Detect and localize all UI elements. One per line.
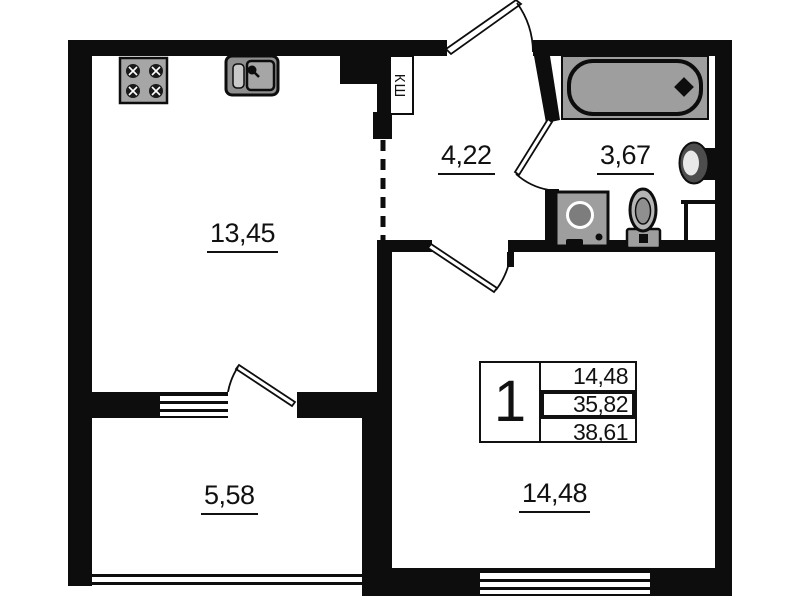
stove-icon bbox=[120, 58, 167, 103]
balcony-area-label: 5,58 bbox=[201, 482, 258, 515]
left-wall bbox=[68, 40, 92, 586]
glazing-line bbox=[92, 574, 362, 577]
total-area-with-balcony-value: 38,61 bbox=[541, 418, 635, 446]
top-wall-right bbox=[533, 40, 732, 56]
glazing-line bbox=[92, 582, 362, 585]
flat-number-cell: 1 bbox=[481, 363, 541, 441]
bathtub-icon bbox=[562, 56, 708, 119]
outer-walls bbox=[68, 40, 732, 596]
right-wall bbox=[715, 40, 732, 594]
door-leaf bbox=[428, 244, 497, 292]
drum bbox=[568, 203, 593, 228]
window-pane bbox=[480, 590, 650, 594]
living-bedroom-wall bbox=[377, 240, 392, 392]
bedroom-window bbox=[480, 568, 650, 596]
kitchen-balcony-wall-left bbox=[68, 392, 160, 418]
window-pane bbox=[480, 582, 650, 587]
kitchen-living-area-label: 13,45 bbox=[207, 220, 278, 253]
closet-label: КШ bbox=[374, 73, 426, 99]
door-swing-arc bbox=[517, 3, 533, 52]
top-wall-left bbox=[68, 40, 447, 56]
kitchen-balcony-wall-right bbox=[297, 392, 392, 418]
door-leaf bbox=[236, 365, 295, 406]
kitchen-balcony-window bbox=[160, 392, 228, 418]
toilet-icon bbox=[627, 189, 660, 248]
drainboard bbox=[233, 64, 244, 88]
window-pane bbox=[160, 404, 228, 409]
hallway-area-label: 4,22 bbox=[438, 142, 495, 175]
door-leaf bbox=[446, 0, 521, 54]
area-values-column: 14,48 35,82 38,61 bbox=[541, 363, 635, 441]
inner-walls bbox=[68, 56, 732, 575]
total-area-value: 35,82 bbox=[541, 391, 635, 418]
balcony-bedroom-wall bbox=[362, 415, 392, 575]
entrance-door bbox=[446, 0, 533, 54]
balcony-door bbox=[228, 365, 295, 406]
duct-niche-wall-v bbox=[684, 200, 688, 246]
bedroom-door bbox=[428, 244, 511, 292]
area-summary-table: 1 14,48 35,82 38,61 bbox=[479, 361, 637, 443]
bedroom-area-label: 14,48 bbox=[519, 480, 590, 513]
door-swing-arc bbox=[228, 367, 238, 392]
balcony-glazing bbox=[92, 574, 362, 585]
bathroom-diagonal-wall bbox=[534, 56, 560, 123]
window-pane bbox=[160, 412, 228, 416]
door-swing-arc bbox=[516, 174, 549, 190]
window-pane bbox=[480, 573, 650, 579]
washbasin-icon bbox=[680, 143, 716, 184]
basin bbox=[247, 61, 274, 90]
washing-machine-icon bbox=[556, 192, 608, 246]
floor-plan: 13,45 4,22 3,67 5,58 14,48 КШ 1 14,48 35… bbox=[0, 0, 799, 600]
bathroom-area-label: 3,67 bbox=[597, 142, 654, 175]
living-area-value: 14,48 bbox=[541, 363, 635, 391]
bath-bedroom-wall bbox=[508, 240, 732, 252]
window-pane bbox=[160, 396, 228, 401]
bottom-wall-right bbox=[650, 568, 732, 596]
kitchen-sink-icon bbox=[226, 56, 278, 95]
bathroom-door bbox=[515, 119, 552, 190]
hall-bedroom-wall bbox=[377, 240, 432, 252]
door-leaf bbox=[515, 119, 552, 175]
partition-cap bbox=[373, 112, 392, 139]
